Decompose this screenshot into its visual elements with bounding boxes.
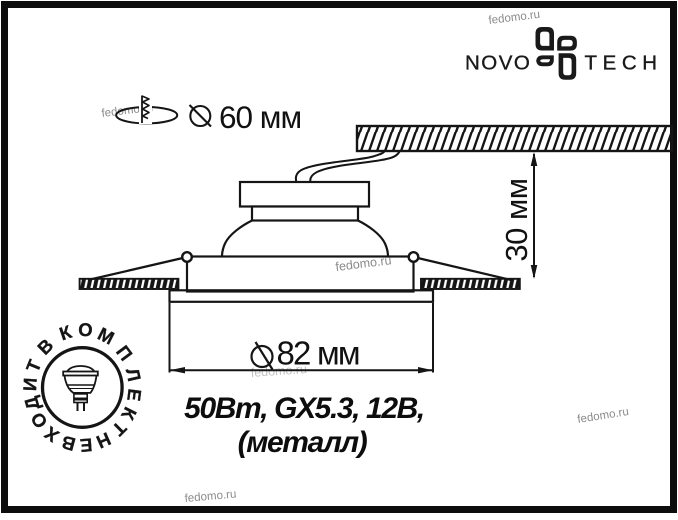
svg-text:Е: Е [79, 434, 93, 456]
svg-text:82 мм: 82 мм [277, 335, 359, 372]
svg-text:И: И [19, 377, 41, 391]
svg-text:TECH: TECH [585, 52, 663, 75]
svg-text:50Bm, GX5.3, 12B,: 50Bm, GX5.3, 12B, [184, 392, 424, 425]
svg-text:(меmалл): (меmалл) [238, 426, 368, 459]
svg-text:60 мм: 60 мм [219, 99, 301, 135]
svg-text:30 мм: 30 мм [499, 178, 534, 261]
svg-text:NOVO: NOVO [465, 52, 531, 75]
svg-text:О: О [78, 319, 94, 341]
